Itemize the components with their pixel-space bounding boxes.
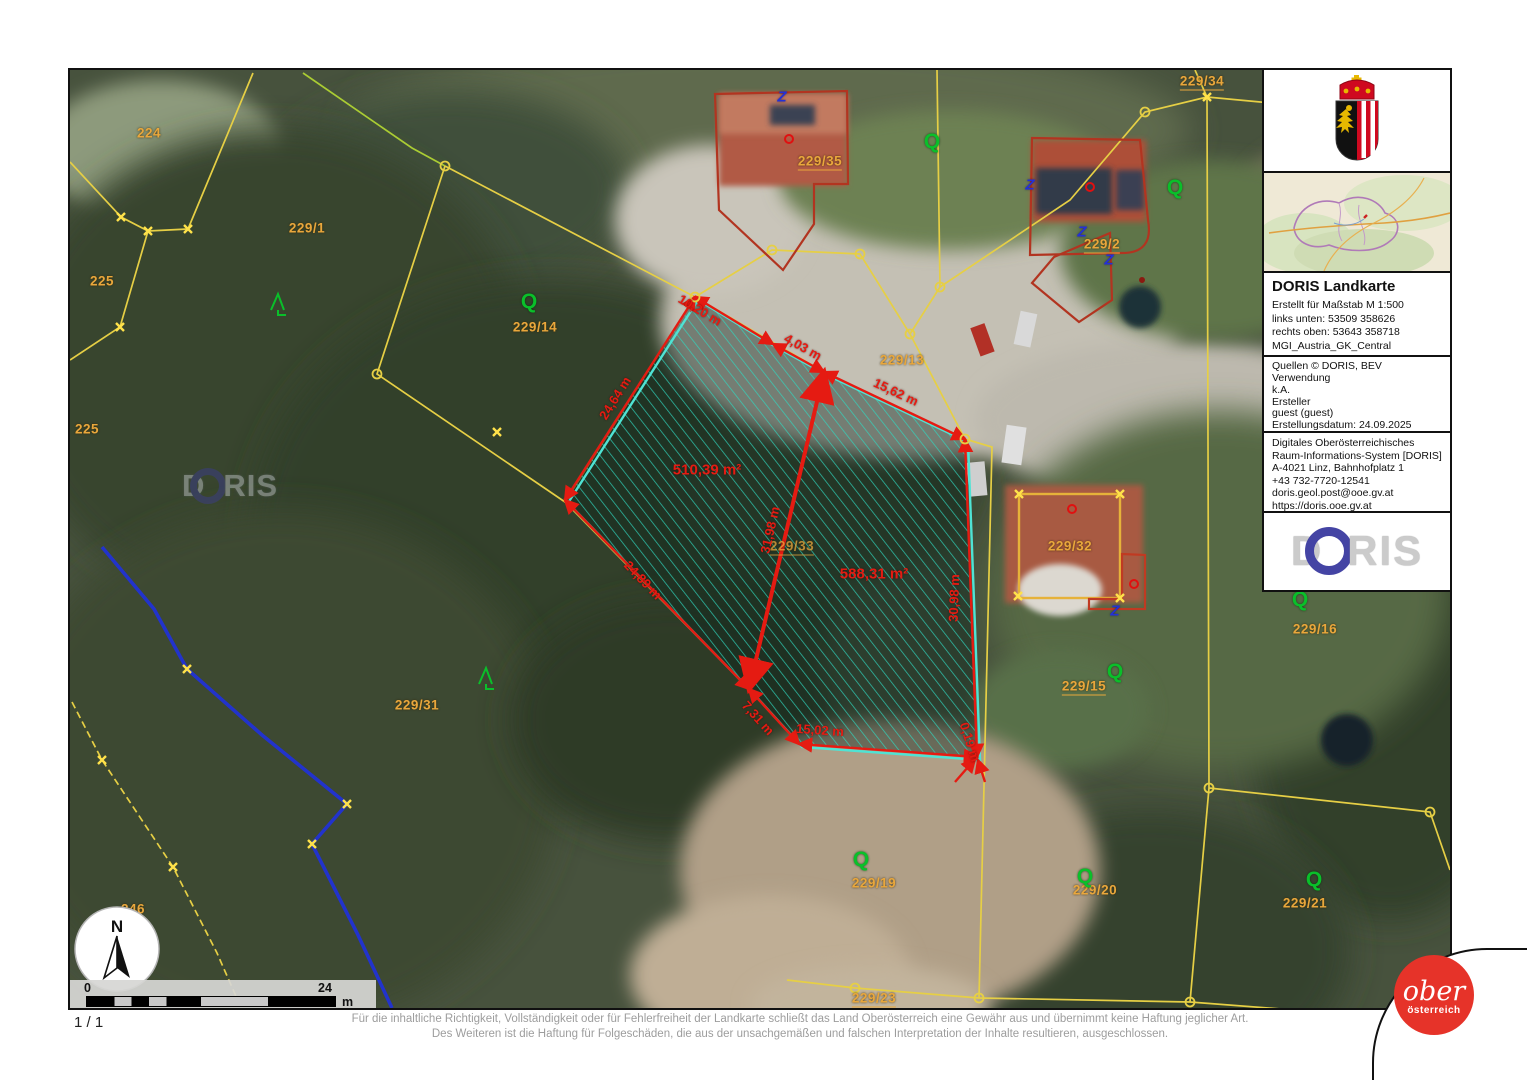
doris-ring-icon <box>190 468 226 504</box>
z-symbol: Z <box>1110 603 1119 620</box>
scale-bar: 0 24 m <box>70 980 376 1010</box>
source-line: Verwendung <box>1272 373 1442 385</box>
parcel-label: 229/31 <box>395 698 439 713</box>
z-symbol: Z <box>1025 177 1034 194</box>
overview-map <box>1264 173 1450 273</box>
parcel-label: 229/34 <box>1180 74 1224 91</box>
address-line: Digitales Oberösterreichisches <box>1272 437 1442 450</box>
parcel-label: 229/13 <box>880 353 924 368</box>
map-title-section: DORIS Landkarte Erstellt für Maßstab M 1… <box>1264 273 1450 357</box>
meta-line: Erstellt für Maßstab M 1:500 <box>1272 299 1442 313</box>
parcel-label: 224 <box>137 126 161 141</box>
scale-start-label: 0 <box>84 981 91 995</box>
ooe-logo-subtext: österreich <box>1407 1005 1460 1016</box>
landuse-q-symbol: Q <box>924 130 940 154</box>
parcel-label: 229/33 <box>770 539 814 556</box>
doris-logo-ring-icon <box>1305 527 1353 575</box>
address-line: Raum-Informations-System [DORIS] <box>1272 450 1442 463</box>
map-legend-panel: DORIS Landkarte Erstellt für Maßstab M 1… <box>1262 68 1452 592</box>
meta-line: links unten: 53509 358626 <box>1272 313 1442 327</box>
landuse-q-symbol: Q <box>853 848 869 872</box>
source-line: k.A. <box>1272 385 1442 397</box>
measure-label: 30,98 m <box>946 574 963 622</box>
ooe-logo-script-text: ober <box>1403 978 1465 1005</box>
parcel-label: 229/19 <box>852 876 896 891</box>
page-number: 1 / 1 <box>74 1014 103 1031</box>
parcel-label: 229/15 <box>1062 679 1106 696</box>
scale-bar-segments <box>86 996 336 1007</box>
area-label: 588,31 m² <box>840 566 908 583</box>
measure-label: 15,02 m <box>796 721 845 739</box>
source-line: Erstellungsdatum: 24.09.2025 <box>1272 420 1442 432</box>
landuse-q-symbol: Q <box>1167 176 1183 200</box>
address-line: A-4021 Linz, Bahnhofplatz 1 <box>1272 462 1442 475</box>
map-title: DORIS Landkarte <box>1272 278 1442 295</box>
disclaimer-line-1: Für die inhaltliche Richtigkeit, Vollstä… <box>330 1012 1270 1027</box>
coat-of-arms-section <box>1264 70 1450 173</box>
email-line: doris.geol.post@ooe.gv.at <box>1272 487 1442 500</box>
doris-watermark: D RIS <box>182 468 278 504</box>
watermark-letters: RIS <box>223 468 278 504</box>
landuse-q-symbol: Q <box>1306 868 1322 892</box>
parcel-label: 229/1 <box>289 221 325 236</box>
landuse-q-symbol: Q <box>1107 660 1123 684</box>
scale-unit-label: m <box>342 995 353 1009</box>
scale-end-label: 24 <box>318 981 332 995</box>
parcel-label: 229/32 <box>1048 539 1092 554</box>
parcel-label: 229/16 <box>1293 622 1337 637</box>
parcel-label: 229/35 <box>798 154 842 171</box>
map-canvas: 224 229/1 225 225 229/14 229/31 246 229/… <box>68 68 1452 1010</box>
pool <box>1321 714 1373 766</box>
website-line: https://doris.ooe.gv.at <box>1272 500 1442 513</box>
pool <box>1119 286 1161 328</box>
z-symbol: Z <box>777 89 786 106</box>
doris-logo-letters: RIS <box>1347 527 1423 575</box>
landuse-q-symbol: Q <box>1077 865 1093 889</box>
z-symbol: Z <box>1077 224 1086 241</box>
oberoesterreich-logo: ober österreich <box>1394 955 1474 1035</box>
north-label: N <box>111 917 123 936</box>
meta-line: MGI_Austria_GK_Central <box>1272 340 1442 354</box>
upper-austria-coat-of-arms-icon <box>1326 73 1388 169</box>
area-label: 510,39 m² <box>673 462 741 479</box>
meta-line: rechts oben: 53643 358718 <box>1272 326 1442 340</box>
disclaimer-text: Für die inhaltliche Richtigkeit, Vollstä… <box>330 1012 1270 1042</box>
doris-logo: D RIS <box>1264 513 1450 588</box>
publisher-address-section: Digitales Oberösterreichisches Raum-Info… <box>1264 433 1450 513</box>
z-symbol: Z <box>1104 252 1113 269</box>
parcel-label: 229/23 <box>852 991 896 1008</box>
disclaimer-line-2: Des Weiteren ist die Haftung für Folgesc… <box>330 1027 1270 1042</box>
source-info-section: Quellen © DORIS, BEV Verwendung k.A. Ers… <box>1264 357 1450 433</box>
landuse-q-symbol: Q <box>521 290 537 314</box>
parcel-label: 225 <box>75 422 99 437</box>
parcel-label: 225 <box>90 274 114 289</box>
parcel-label: 229/14 <box>513 320 557 335</box>
parcel-label: 229/21 <box>1283 896 1327 911</box>
address-line: +43 732-7720-12541 <box>1272 475 1442 488</box>
doris-print-page: 224 229/1 225 225 229/14 229/31 246 229/… <box>0 0 1527 1080</box>
parcel-label: 229/2 <box>1084 237 1120 254</box>
